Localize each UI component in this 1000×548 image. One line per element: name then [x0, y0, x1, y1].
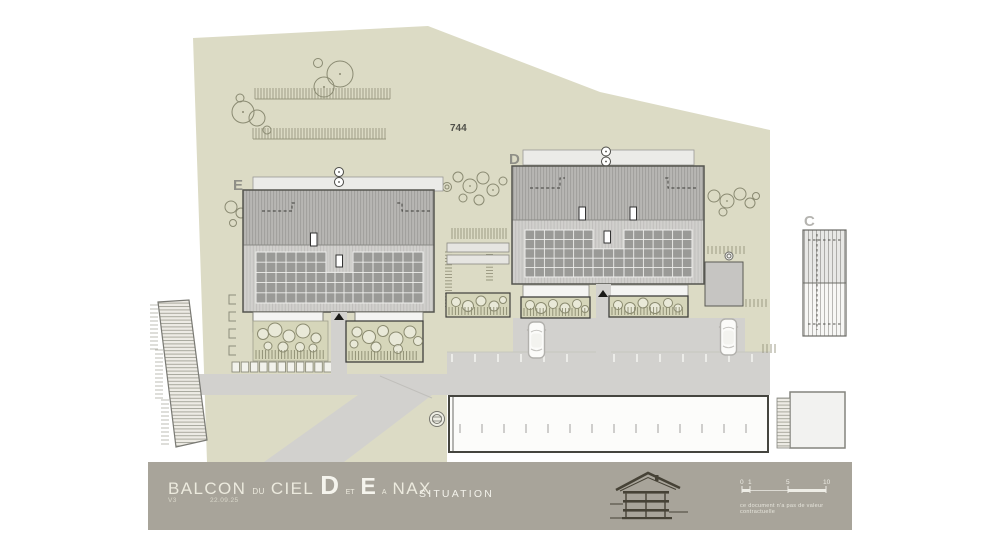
project-title: BALCON DU CIEL D ET E A NAX — [168, 470, 432, 501]
scale-label-0: 0 — [740, 479, 744, 486]
project-title-word: CIEL — [271, 479, 314, 499]
site-plan-sheet: C E — [0, 0, 1000, 548]
project-title-building-d: D — [320, 470, 339, 501]
scale-bar: 0 1 5 10 — [738, 476, 838, 502]
project-title-word: DU — [252, 487, 265, 496]
building-southeast — [777, 392, 845, 448]
project-title-word: ET — [346, 489, 355, 496]
building-e-walkway — [331, 312, 347, 376]
building-d-annex — [705, 262, 743, 306]
parked-car — [719, 319, 738, 355]
existing-building-west — [150, 300, 207, 447]
scale-label-5: 5 — [786, 479, 790, 486]
parked-car — [527, 322, 546, 358]
building-c-label: C — [804, 213, 815, 230]
sheet-title: SITUATION — [419, 488, 494, 500]
underground-parking — [449, 396, 768, 452]
building-d-terrace — [610, 285, 688, 297]
building-section-icon — [608, 467, 690, 521]
date-label: 22.09.25 — [210, 497, 239, 504]
building-c: C — [803, 213, 846, 336]
title-bar: BALCON DU CIEL D ET E A NAX V3 22.09.25 … — [148, 462, 852, 530]
scale-label-10: 10 — [823, 479, 831, 486]
project-title-building-e: E — [361, 473, 376, 500]
version-label: V3 — [168, 497, 177, 504]
project-title-word: BALCON — [168, 479, 246, 499]
parcel-number-label: 744 — [450, 123, 467, 134]
manhole-icon — [725, 252, 733, 260]
disclaimer-note: ce document n'a pas de valeur contractue… — [740, 503, 852, 515]
scale-label-1: 1 — [748, 479, 752, 486]
hatched-circle-symbol — [430, 412, 445, 427]
building-e: E — [233, 168, 443, 377]
project-title-word: A — [382, 489, 387, 496]
building-d-terrace — [523, 285, 589, 297]
building-d-label: D — [509, 151, 520, 168]
building-e-label: E — [233, 177, 243, 194]
building-e-attic-strip — [253, 177, 443, 191]
